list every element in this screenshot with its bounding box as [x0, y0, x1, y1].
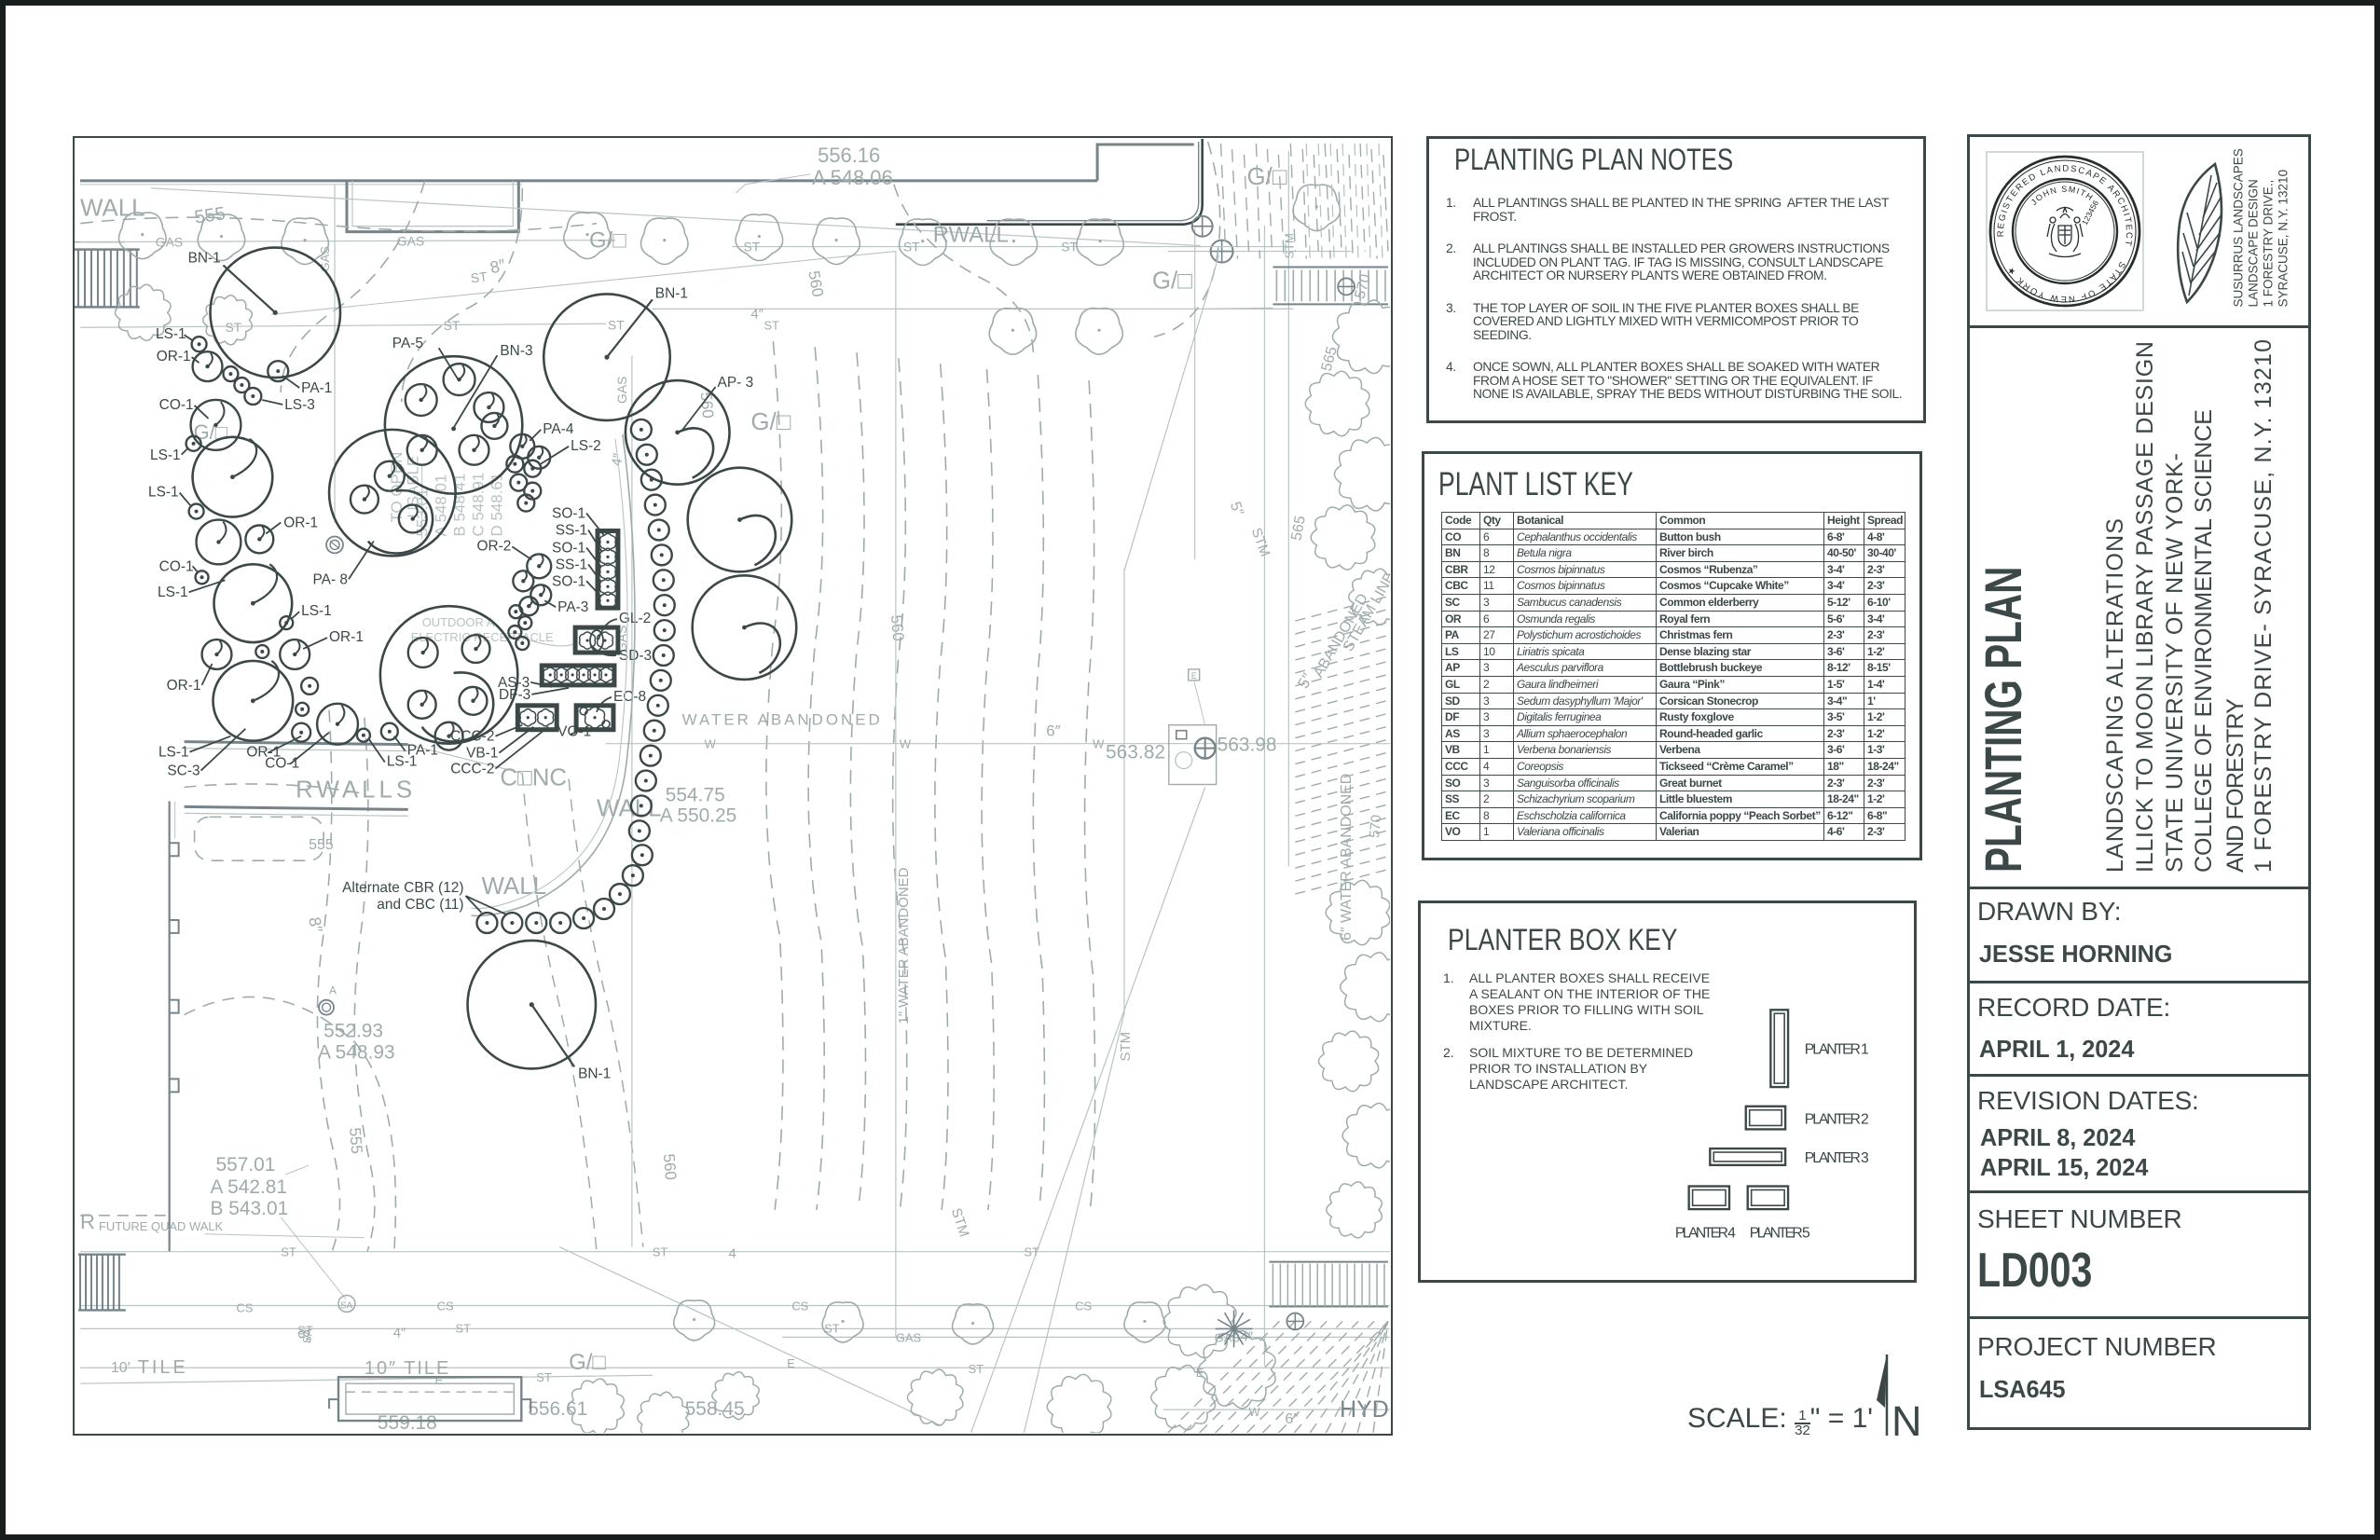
svg-text:OR-1: OR-1 [329, 629, 364, 645]
svg-text:A 550.25: A 550.25 [660, 804, 737, 826]
svg-text:1 FORESTRY DRIVE- SYRACUSE, N.: 1 FORESTRY DRIVE- SYRACUSE, N.Y. 13210 [2250, 339, 2277, 873]
svg-text:CS: CS [437, 1299, 454, 1313]
svg-text:SS-1: SS-1 [556, 522, 587, 538]
svg-text:GAS: GAS [156, 235, 183, 250]
svg-text:W: W [1093, 737, 1105, 751]
svg-text:C□NC: C□NC [500, 765, 567, 791]
svg-text:ST: ST [1061, 240, 1078, 254]
svg-text:SO-1: SO-1 [552, 573, 585, 589]
svg-text:552.93: 552.93 [323, 1021, 383, 1042]
svg-text:570: 570 [1353, 272, 1374, 300]
svg-text:AP- 3: AP- 3 [718, 375, 754, 391]
svg-text:8″: 8″ [488, 255, 508, 278]
svg-text:LS-1: LS-1 [387, 754, 418, 770]
svg-text:5″: 5″ [1227, 500, 1246, 518]
svg-text:CS: CS [791, 1299, 808, 1313]
svg-text:PA-4: PA-4 [543, 421, 574, 437]
svg-text:A 542.81: A 542.81 [211, 1176, 288, 1198]
svg-text:ILLICK TO MOON LIBRARY PASSAGE: ILLICK TO MOON LIBRARY PASSAGE DESIGN [2132, 341, 2158, 873]
svg-text:556.61: 556.61 [528, 1398, 587, 1420]
svg-text:LS-1: LS-1 [158, 584, 188, 600]
svg-text:CCC-2: CCC-2 [450, 729, 494, 745]
svg-text:G/□: G/□ [1247, 164, 1287, 190]
svg-text:C 548.91: C 548.91 [469, 473, 487, 537]
svg-text:G/□: G/□ [1152, 268, 1192, 294]
svg-text:GAS: GAS [397, 234, 424, 249]
svg-text:ST: ST [764, 318, 779, 332]
svg-text:1″ WATER ABANDONED: 1″ WATER ABANDONED [896, 867, 912, 1024]
svg-text:PA-1: PA-1 [301, 380, 332, 396]
svg-text:PLANTER 3: PLANTER 3 [1805, 1150, 1869, 1166]
svg-text:G/□: G/□ [589, 228, 626, 254]
svg-text:STM: STM [1118, 1032, 1134, 1062]
svg-text:556.16: 556.16 [818, 144, 880, 167]
svg-text:RWALLS: RWALLS [296, 777, 416, 803]
svg-text:A 548.93: A 548.93 [318, 1041, 395, 1063]
svg-text:JOHN SMITH: JOHN SMITH [2029, 185, 2096, 207]
svg-text:10″ TILE: 10″ TILE [365, 1358, 450, 1379]
svg-text:ST: ST [536, 1370, 552, 1384]
svg-text:ST: ST [456, 1321, 472, 1335]
svg-text:LS-1: LS-1 [301, 603, 332, 619]
svg-text:A: A [329, 984, 337, 997]
svg-text:CS: CS [1075, 1299, 1092, 1313]
svg-text:LS-1: LS-1 [158, 745, 189, 761]
svg-text:565: 565 [1289, 515, 1309, 542]
svg-text:554.75: 554.75 [666, 784, 725, 805]
svg-text:A 548.01: A 548.01 [433, 474, 450, 537]
svg-text:559.18: 559.18 [378, 1412, 437, 1433]
svg-text:OR-1: OR-1 [157, 349, 191, 364]
svg-text:BN-3: BN-3 [500, 343, 532, 359]
svg-text:SS-1: SS-1 [556, 557, 587, 572]
svg-text:ST: ST [444, 318, 461, 333]
svg-text:ST: ST [743, 240, 760, 254]
svg-text:ST: ST [969, 1362, 984, 1376]
svg-text:CO-1: CO-1 [265, 756, 299, 772]
svg-text:555: 555 [346, 1127, 365, 1155]
svg-text:PA-5: PA-5 [392, 336, 423, 351]
svg-text:E: E [1191, 671, 1197, 681]
svg-text:and CBC (11): and CBC (11) [377, 897, 463, 913]
svg-text:R: R [80, 1210, 95, 1233]
svg-text:6″ WATER ABANDONED: 6″ WATER ABANDONED [1339, 774, 1355, 941]
svg-text:G/□: G/□ [194, 420, 227, 444]
svg-text:CO-1: CO-1 [159, 397, 194, 413]
svg-text:123456: 123456 [2080, 199, 2100, 227]
svg-text:560: 560 [887, 614, 907, 642]
svg-text:G/□: G/□ [569, 1350, 606, 1375]
svg-text:ST: ST [903, 240, 920, 254]
svg-text:SA: SA [340, 1300, 353, 1311]
svg-text:W: W [900, 737, 912, 751]
svg-text:ST: ST [470, 268, 488, 285]
svg-text:SO-1: SO-1 [552, 506, 585, 522]
svg-text:SC-3: SC-3 [167, 763, 199, 779]
svg-text:WATER ABANDONED: WATER ABANDONED [682, 711, 883, 729]
svg-text:GAS: GAS [318, 246, 332, 272]
svg-text:LS-1: LS-1 [150, 447, 181, 463]
svg-text:CCC-2: CCC-2 [450, 762, 494, 777]
svg-text:EC-8: EC-8 [613, 689, 646, 705]
svg-text:OR-2: OR-2 [476, 538, 511, 554]
svg-text:558.45: 558.45 [685, 1398, 745, 1420]
svg-text:LS-1: LS-1 [156, 326, 186, 342]
svg-text:565: 565 [1319, 345, 1341, 373]
svg-text:555: 555 [309, 837, 334, 853]
svg-text:A 548.06: A 548.06 [812, 166, 893, 189]
svg-text:BN-1: BN-1 [655, 285, 688, 301]
svg-text:557.01: 557.01 [215, 1154, 275, 1176]
svg-text:AND FORESTRY: AND FORESTRY [2222, 698, 2249, 873]
svg-text:SA: SA [300, 1327, 314, 1343]
svg-text:GAS: GAS [614, 377, 629, 404]
svg-text:G/□: G/□ [750, 409, 791, 435]
svg-text:DF-3: DF-3 [499, 687, 530, 703]
svg-text:B 543.01: B 543.01 [211, 1198, 289, 1219]
svg-text:W: W [1249, 1405, 1261, 1419]
svg-text:LS-3: LS-3 [284, 397, 315, 413]
svg-text:PLANTER 5: PLANTER 5 [1750, 1226, 1810, 1242]
svg-text:GAS: GAS [896, 1330, 922, 1344]
svg-text:Alternate CBR (12): Alternate CBR (12) [342, 880, 463, 896]
svg-text:PLANTER 4: PLANTER 4 [1675, 1226, 1736, 1242]
svg-text:ST: ST [281, 1245, 296, 1259]
svg-text:ST: ST [225, 320, 241, 335]
svg-text:10′: 10′ [111, 1360, 131, 1376]
svg-text:563.98: 563.98 [1218, 735, 1277, 756]
svg-text:SD-3: SD-3 [619, 648, 652, 664]
svg-text:CO-1: CO-1 [159, 558, 194, 574]
svg-text:TILE: TILE [138, 1357, 188, 1378]
svg-text:LS-2: LS-2 [571, 438, 601, 454]
svg-text:STATE UNIVERSITY OF NEW YORK-: STATE UNIVERSITY OF NEW YORK- [2162, 453, 2188, 873]
svg-text:RWALL: RWALL [933, 223, 1009, 248]
svg-text:N: N [1892, 1397, 1922, 1445]
svg-text:COLLEGE OF ENVIRONMENTAL SCIEN: COLLEGE OF ENVIRONMENTAL SCIENCE [2191, 409, 2217, 873]
svg-text:WALL: WALL [80, 196, 145, 222]
svg-text:563.82: 563.82 [1106, 742, 1165, 763]
svg-text:BN-1: BN-1 [578, 1066, 611, 1081]
svg-text:6″: 6″ [1046, 722, 1060, 740]
svg-text:570: 570 [1367, 814, 1384, 838]
svg-text:4″: 4″ [393, 1325, 406, 1341]
svg-text:SO-1: SO-1 [552, 540, 585, 556]
svg-text:OR-1: OR-1 [283, 515, 318, 530]
svg-text:PLANTER 2: PLANTER 2 [1805, 1111, 1869, 1127]
svg-text:VB-1: VB-1 [466, 746, 498, 762]
svg-text:OUTDOOR A: OUTDOOR A [422, 615, 495, 629]
svg-text:ST: ST [1024, 1245, 1039, 1259]
svg-text:OR-1: OR-1 [167, 678, 201, 694]
svg-text:PA-3: PA-3 [557, 599, 588, 615]
svg-text:CS: CS [236, 1300, 253, 1314]
svg-text:8″: 8″ [305, 915, 326, 934]
svg-text:FUTURE QUAD WALK: FUTURE QUAD WALK [99, 1219, 224, 1233]
svg-text:BN-1: BN-1 [188, 251, 221, 267]
svg-text:STATE OF NEW YORK ★: STATE OF NEW YORK ★ [2004, 260, 2126, 304]
svg-text:ST: ST [608, 317, 625, 332]
svg-text:PA- 8: PA- 8 [313, 571, 348, 587]
svg-text:LS-1: LS-1 [148, 485, 179, 501]
svg-text:WALL: WALL [481, 873, 546, 900]
svg-text:W: W [705, 737, 717, 751]
svg-text:560: 560 [805, 269, 827, 298]
svg-text:STM: STM [1248, 526, 1273, 558]
svg-text:LANDSCAPING ALTERATIONS: LANDSCAPING ALTERATIONS [2102, 518, 2128, 873]
svg-text:560: 560 [660, 1153, 680, 1181]
svg-text:PLANTER 1: PLANTER 1 [1805, 1042, 1869, 1058]
svg-text:4: 4 [729, 1246, 736, 1262]
svg-text:STM: STM [948, 1206, 972, 1239]
svg-text:REGISTERED LANDSCAPE ARCHITECT: REGISTERED LANDSCAPE ARCHITECT ★ [1986, 151, 2134, 248]
svg-text:ST: ST [653, 1245, 668, 1259]
svg-text:E: E [787, 1356, 795, 1370]
svg-text:4″: 4″ [750, 306, 764, 322]
